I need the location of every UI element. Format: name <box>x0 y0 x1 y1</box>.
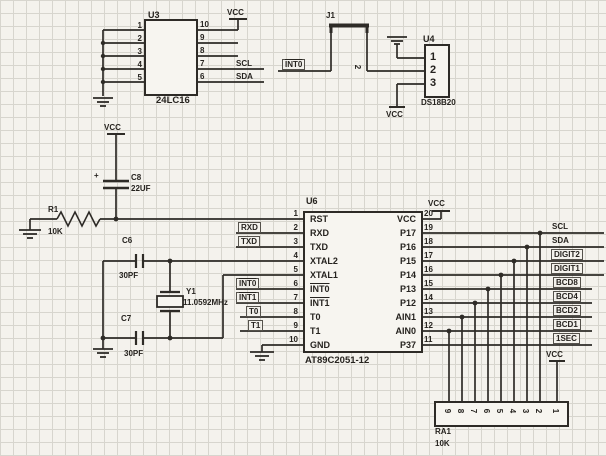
vcc-label: VCC <box>104 123 121 133</box>
ra1-body <box>435 402 568 426</box>
vcc-label: VCC <box>428 199 445 209</box>
pin-number: 1 <box>550 409 560 413</box>
net-label-digit2: DIGIT2 <box>551 249 583 260</box>
pin-number: 6 <box>481 409 491 413</box>
net-label-txd: TXD <box>238 236 260 247</box>
pin-number: 7 <box>276 293 298 303</box>
pin-number: 1 <box>430 51 436 63</box>
u6-ref: U6 <box>306 196 318 206</box>
u4-body <box>425 45 449 97</box>
r1-symbol <box>57 212 100 226</box>
ra1-value: 10K <box>435 439 450 449</box>
schematic-canvas: U3 24LC16 1 2 3 4 5 10 9 8 7 6 SCL SDA V… <box>0 0 606 456</box>
net-label-scl: SCL <box>552 222 568 232</box>
r1-value: 10K <box>48 227 63 237</box>
net-label-int1: INT1 <box>236 292 259 303</box>
u6-pin-name-xtal1: XTAL1 <box>310 270 338 280</box>
pin-number: 6 <box>200 72 204 82</box>
pin-number: 4 <box>507 409 517 413</box>
u6-pin-name-ain0: AIN0 <box>380 326 416 336</box>
u6-pin-name-int0: INT0 <box>310 284 330 294</box>
pin-number: 10 <box>200 20 209 30</box>
vcc-label: VCC <box>386 110 403 120</box>
r1-ref: R1 <box>48 205 58 215</box>
net-label-digit1: DIGIT1 <box>551 263 583 274</box>
u6-pin-name-p17: P17 <box>380 228 416 238</box>
net-label-1sec: 1SEC <box>553 333 580 344</box>
u6-pin-name-txd: TXD <box>310 242 328 252</box>
net-label-sda: SDA <box>552 236 569 246</box>
c6-symbol <box>136 254 143 268</box>
u4-ref: U4 <box>423 34 435 44</box>
y1-ref: Y1 <box>186 287 196 297</box>
u6-pin-name-gnd: GND <box>310 340 330 350</box>
u6-pin-name-ain1: AIN1 <box>380 312 416 322</box>
u6-pin-name-p14: P14 <box>380 270 416 280</box>
pin-number: 2 <box>430 64 436 76</box>
pin-number: 5 <box>276 265 298 275</box>
y1-value: 11.0592MHz <box>183 298 228 308</box>
pin-number: 18 <box>424 237 433 247</box>
u6-pin-name-p12: P12 <box>380 298 416 308</box>
u6-pin-name-rxd: RXD <box>310 228 329 238</box>
net-label-int0: INT0 <box>236 278 259 289</box>
pin-number: 2 <box>352 65 362 69</box>
u6-pin-name-p37: P37 <box>380 340 416 350</box>
pin-number: 8 <box>200 46 204 56</box>
u3-ref: U3 <box>148 10 160 20</box>
pin-number: 7 <box>200 59 204 69</box>
pin-number: 3 <box>430 77 436 89</box>
pin-number: 11 <box>424 335 432 345</box>
u3-body <box>145 20 197 95</box>
pin-number: 16 <box>424 265 433 275</box>
pin-number: 17 <box>424 251 433 261</box>
c8-value: 22UF <box>131 184 151 194</box>
pin-number: 8 <box>276 307 298 317</box>
j1-ref: J1 <box>326 11 335 21</box>
pin-number: 9 <box>276 321 298 331</box>
u3-part: 24LC16 <box>156 95 190 106</box>
pin-number: 10 <box>276 335 298 345</box>
net-label-t0: T0 <box>246 306 261 317</box>
u6-pin-name-int1: INT1 <box>310 298 330 308</box>
ra1-ref: RA1 <box>435 427 451 437</box>
pin-number: 9 <box>200 33 204 43</box>
pin-number: 7 <box>468 409 478 413</box>
u6-pin-name-p15: P15 <box>380 256 416 266</box>
pin-number: 2 <box>533 409 543 413</box>
net-label-scl: SCL <box>236 59 252 69</box>
pin-number: 4 <box>276 251 298 261</box>
c6-ref: C6 <box>122 236 132 246</box>
u6-pin-name-p16: P16 <box>380 242 416 252</box>
pin-number: 2 <box>124 34 142 44</box>
pin-number: 4 <box>124 60 142 70</box>
net-label-bcd1: BCD1 <box>553 319 581 330</box>
net-label-bcd2: BCD2 <box>553 305 581 316</box>
pin-number: 9 <box>442 409 452 413</box>
crystal-symbol <box>157 292 183 311</box>
u6-part: AT89C2051-12 <box>305 355 369 366</box>
net-label-rxd: RXD <box>238 222 261 233</box>
j1-symbol <box>329 25 369 33</box>
c6-value: 30PF <box>119 271 138 281</box>
u6-pin-name-p13: P13 <box>380 284 416 294</box>
net-label-bcd4: BCD4 <box>553 291 581 302</box>
net-label-sda: SDA <box>236 72 253 82</box>
net-label-int0: INT0 <box>282 59 305 70</box>
pin-number: 3 <box>276 237 298 247</box>
net-label-t1: T1 <box>248 320 263 331</box>
pin-number: 5 <box>124 73 142 83</box>
pin-number: 20 <box>424 209 433 219</box>
pin-number: 3 <box>124 47 142 57</box>
net-label-bcd8: BCD8 <box>553 277 581 288</box>
u6-pin-name-t0: T0 <box>310 312 321 322</box>
pin-number: 12 <box>424 321 433 331</box>
pin-number: 15 <box>424 279 433 289</box>
u6-pin-name-rst: RST <box>310 214 328 224</box>
pin-number: 14 <box>424 293 433 303</box>
c7-ref: C7 <box>121 314 131 324</box>
u6-pin-name-t1: T1 <box>310 326 321 336</box>
vcc-label: VCC <box>546 350 563 360</box>
u4-part: DS18B20 <box>421 98 456 108</box>
pin-number: 6 <box>276 279 298 289</box>
c8-ref: C8 <box>131 173 141 183</box>
pin-number: 2 <box>276 223 298 233</box>
pin-number: 19 <box>424 223 433 233</box>
vcc-label: VCC <box>227 8 244 18</box>
pin-number: 13 <box>424 307 433 317</box>
pin-number: 1 <box>276 209 298 219</box>
polarity-plus: + <box>94 171 99 181</box>
c7-symbol <box>136 331 143 345</box>
u6-pin-name-xtal2: XTAL2 <box>310 256 338 266</box>
pin-number: 3 <box>520 409 530 413</box>
pin-number: 1 <box>124 21 142 31</box>
c7-value: 30PF <box>124 349 143 359</box>
pin-number: 5 <box>494 409 504 413</box>
c8-symbol <box>103 181 129 188</box>
pin-number: 8 <box>455 409 465 413</box>
u6-pin-name-vcc: VCC <box>380 214 416 224</box>
